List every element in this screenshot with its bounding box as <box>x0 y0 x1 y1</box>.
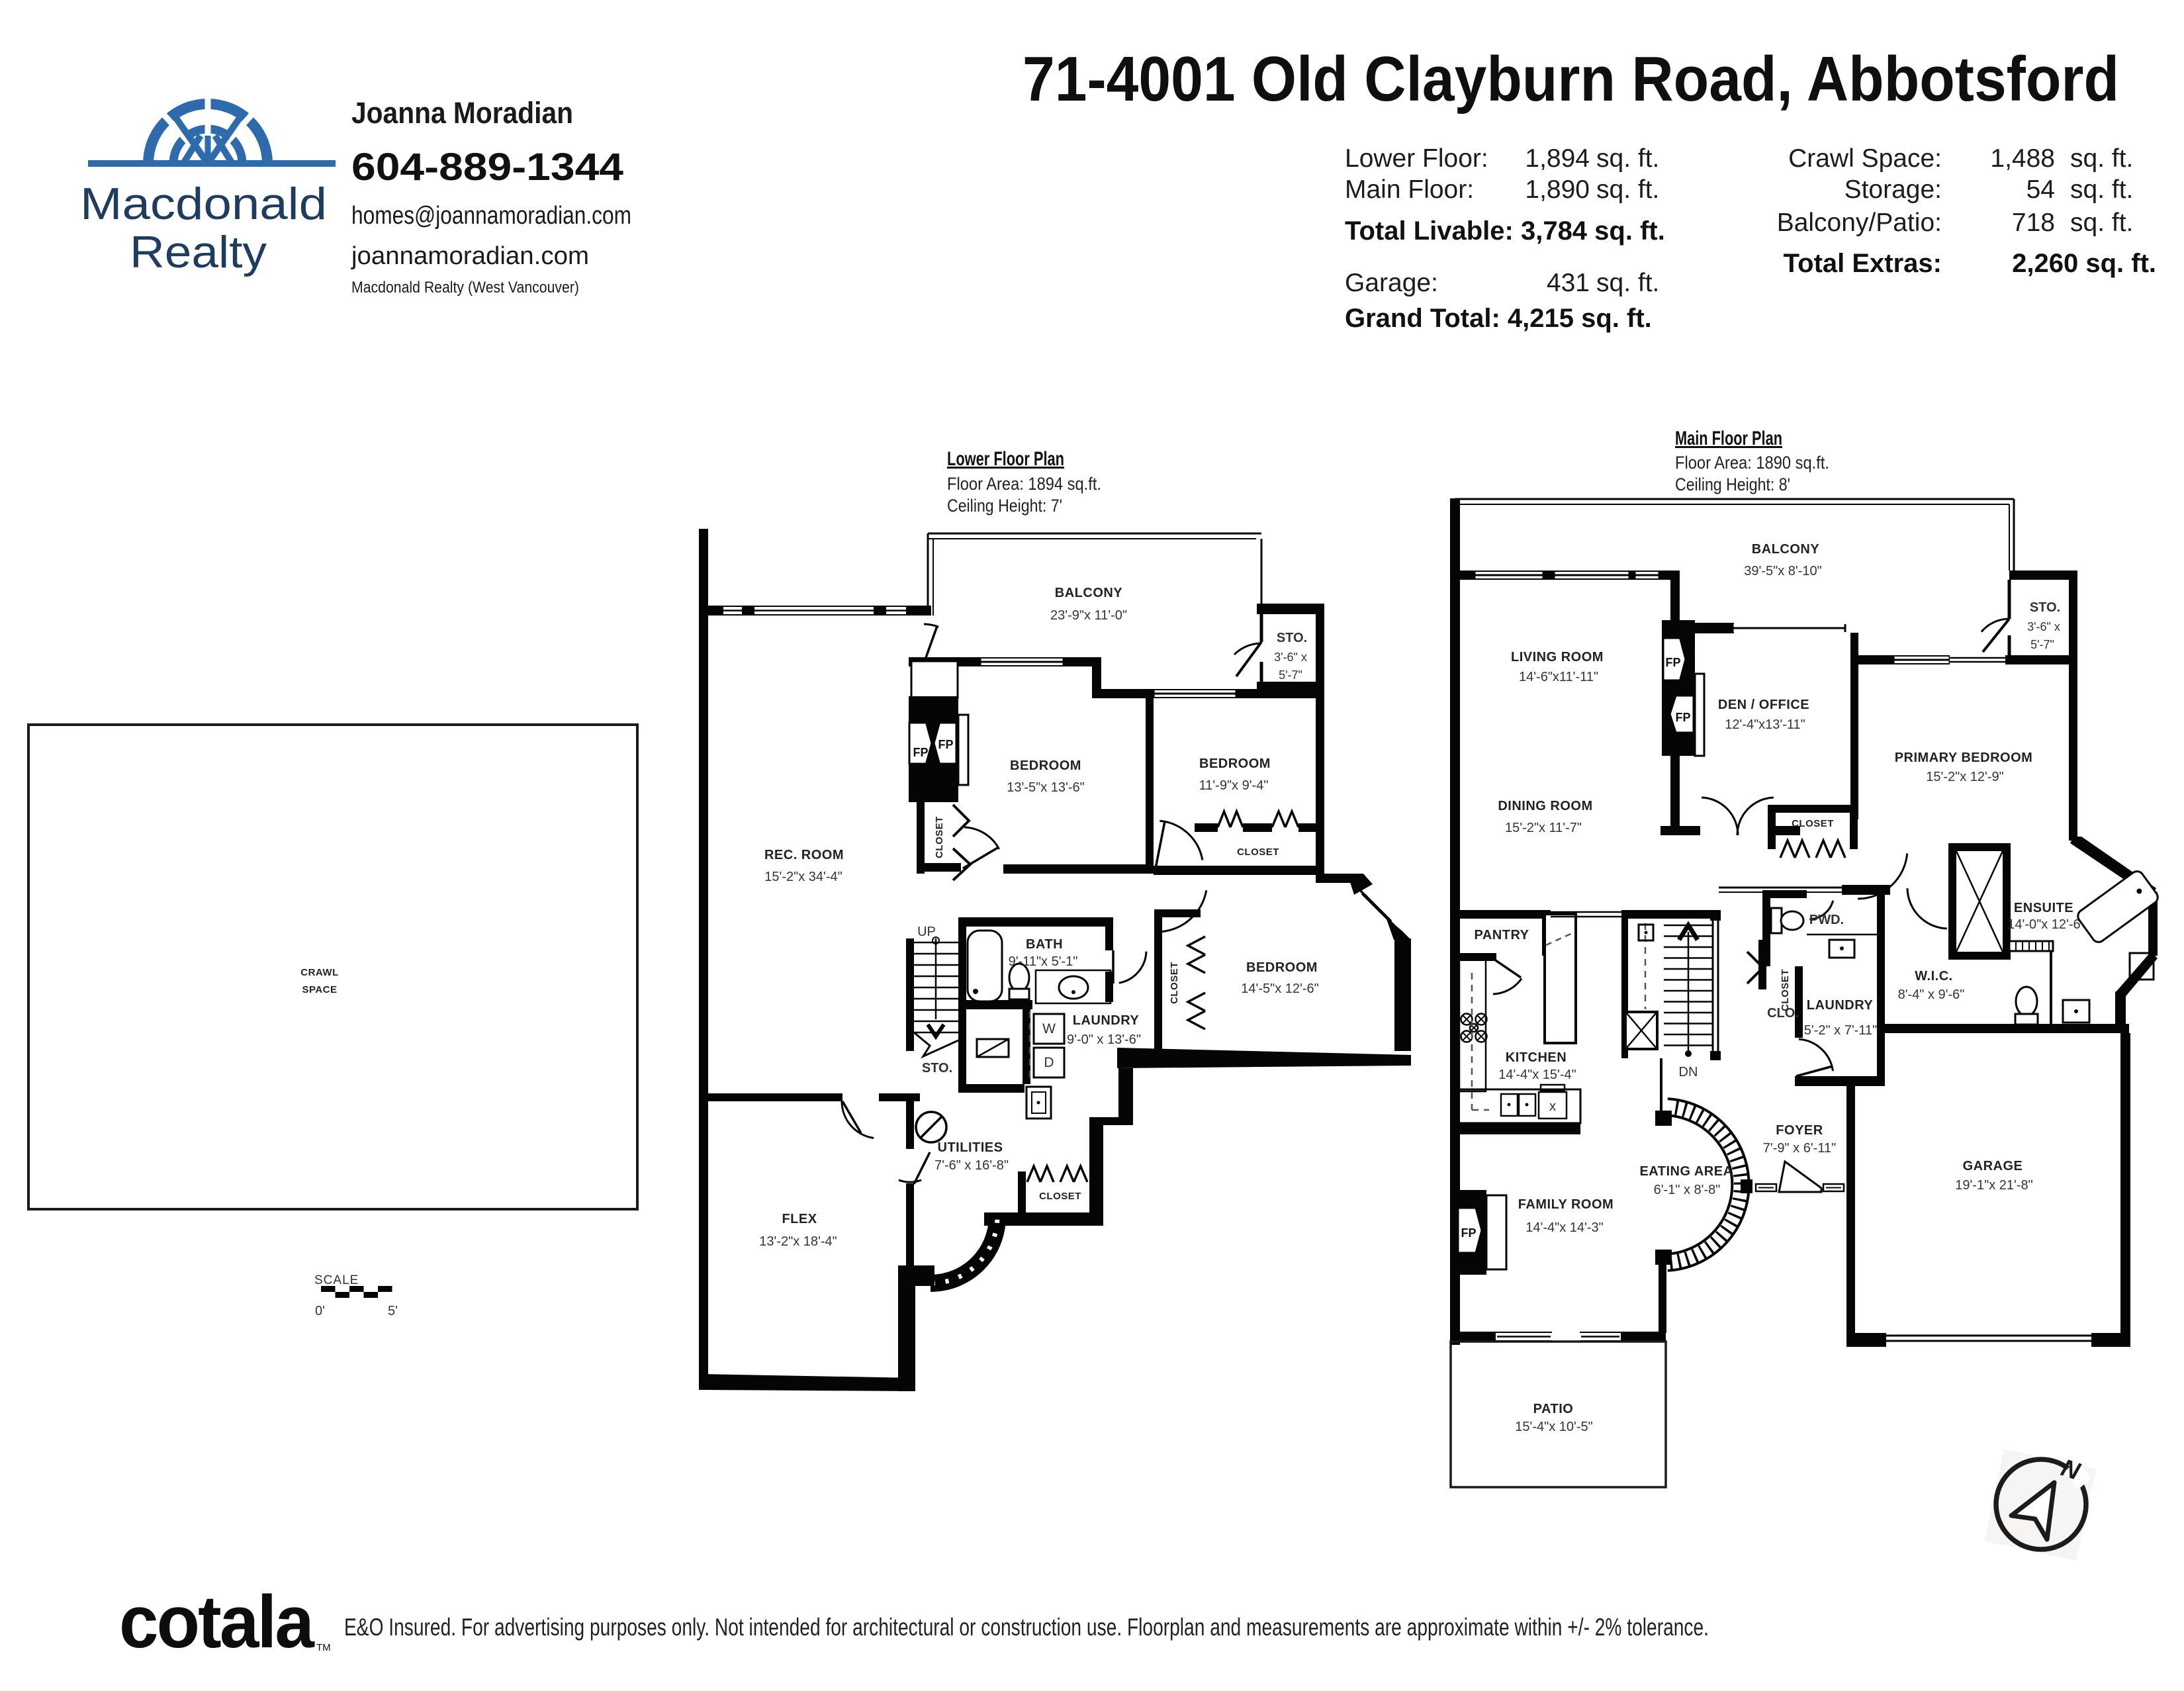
svg-text:14'-4"x 15'-4": 14'-4"x 15'-4" <box>1498 1068 1576 1082</box>
svg-text:CLOSET: CLOSET <box>1792 818 1834 829</box>
svg-text:FP: FP <box>938 738 953 751</box>
svg-text:23'-9"x 11'-0": 23'-9"x 11'-0" <box>1050 608 1127 623</box>
svg-text:sq. ft.: sq. ft. <box>2070 144 2133 173</box>
svg-text:13'-5"x 13'-6": 13'-5"x 13'-6" <box>1007 780 1084 795</box>
svg-text:1,890: 1,890 <box>1525 175 1590 204</box>
svg-text:BEDROOM: BEDROOM <box>1199 756 1271 771</box>
svg-text:15'-2"x 34'-4": 15'-2"x 34'-4" <box>764 870 842 884</box>
svg-text:DEN / OFFICE: DEN / OFFICE <box>1718 698 1809 712</box>
svg-text:W.I.C.: W.I.C. <box>1915 969 1952 983</box>
svg-text:CLOSET: CLOSET <box>1169 962 1180 1004</box>
svg-text:604-889-1344: 604-889-1344 <box>351 146 623 189</box>
svg-text:TM: TM <box>316 1642 331 1653</box>
svg-text:14'-4"x 14'-3": 14'-4"x 14'-3" <box>1525 1220 1603 1235</box>
svg-text:FP: FP <box>1461 1226 1476 1240</box>
svg-text:FP: FP <box>1665 656 1680 669</box>
svg-text:E&O Insured. For advertising p: E&O Insured. For advertising purposes on… <box>344 1614 1709 1641</box>
svg-text:homes@joannamoradian.com: homes@joannamoradian.com <box>351 202 631 230</box>
svg-text:LAUNDRY: LAUNDRY <box>1807 998 1874 1013</box>
svg-text:CLO.: CLO. <box>1767 1006 1799 1021</box>
svg-text:Lower Floor Plan: Lower Floor Plan <box>947 448 1064 470</box>
svg-text:5'-7": 5'-7" <box>2030 638 2054 651</box>
svg-text:Macdonald Realty (West Vancouv: Macdonald Realty (West Vancouver) <box>351 279 579 297</box>
svg-text:Storage:: Storage: <box>1844 175 1942 204</box>
svg-text:PANTRY: PANTRY <box>1475 928 1529 942</box>
svg-text:6'-1" x 8'-8": 6'-1" x 8'-8" <box>1654 1183 1721 1197</box>
svg-text:KITCHEN: KITCHEN <box>1506 1050 1567 1065</box>
svg-text:15'-2"x 12'-9": 15'-2"x 12'-9" <box>1926 770 2003 784</box>
svg-text:5': 5' <box>388 1304 398 1318</box>
svg-text:x: x <box>1549 1099 1556 1114</box>
svg-text:LAUNDRY: LAUNDRY <box>1073 1013 1140 1028</box>
svg-text:Joanna Moradian: Joanna Moradian <box>351 96 573 130</box>
svg-text:REC. ROOM: REC. ROOM <box>764 848 844 862</box>
svg-text:3'-6" x: 3'-6" x <box>2027 620 2060 633</box>
svg-text:PATIO: PATIO <box>1533 1402 1574 1416</box>
svg-text:7'-6" x 16'-8": 7'-6" x 16'-8" <box>934 1158 1009 1173</box>
svg-text:Main Floor Plan: Main Floor Plan <box>1675 428 1782 449</box>
svg-text:PRIMARY BEDROOM: PRIMARY BEDROOM <box>1895 751 2033 765</box>
svg-text:GARAGE: GARAGE <box>1963 1159 2023 1173</box>
svg-text:Balcony/Patio:: Balcony/Patio: <box>1777 208 1942 237</box>
svg-text:71-4001 Old Clayburn Road, Abb: 71-4001 Old Clayburn Road, Abbotsford <box>1023 44 2119 114</box>
svg-text:0': 0' <box>315 1304 325 1318</box>
svg-text:Total Extras:: Total Extras: <box>1784 249 1942 278</box>
svg-text:SCALE: SCALE <box>314 1273 359 1287</box>
svg-text:Macdonald: Macdonald <box>80 179 327 229</box>
svg-text:FP: FP <box>913 746 928 759</box>
svg-text:FOYER: FOYER <box>1776 1123 1823 1138</box>
svg-text:BALCONY: BALCONY <box>1752 542 1820 557</box>
svg-text:sq. ft.: sq. ft. <box>1596 175 1659 204</box>
svg-text:9'-11"x 5'-1": 9'-11"x 5'-1" <box>1009 954 1078 969</box>
svg-text:CLOSET: CLOSET <box>934 816 945 858</box>
svg-text:39'-5"x 8'-10": 39'-5"x 8'-10" <box>1744 564 1821 578</box>
svg-text:sq. ft.: sq. ft. <box>1596 269 1659 297</box>
svg-text:1,894: 1,894 <box>1525 144 1590 173</box>
svg-text:STO.: STO. <box>2030 600 2060 615</box>
svg-text:Floor Area: 1894 sq.ft.: Floor Area: 1894 sq.ft. <box>947 474 1101 494</box>
svg-text:5'-7": 5'-7" <box>1279 668 1302 682</box>
svg-text:FLEX: FLEX <box>782 1212 817 1226</box>
svg-text:STO.: STO. <box>922 1061 952 1075</box>
svg-text:sq. ft.: sq. ft. <box>2070 208 2133 237</box>
svg-text:431: 431 <box>1547 269 1590 297</box>
svg-text:2,260 sq. ft.: 2,260 sq. ft. <box>2012 249 2156 278</box>
svg-text:DINING ROOM: DINING ROOM <box>1498 799 1592 813</box>
svg-text:EATING AREA: EATING AREA <box>1639 1164 1733 1179</box>
svg-text:D: D <box>1044 1055 1054 1070</box>
svg-text:DN: DN <box>1679 1065 1698 1079</box>
svg-text:ENSUITE: ENSUITE <box>2014 901 2073 915</box>
svg-text:54: 54 <box>2026 175 2055 204</box>
svg-text:BEDROOM: BEDROOM <box>1010 758 1081 773</box>
svg-text:718: 718 <box>2012 208 2055 237</box>
svg-text:FP: FP <box>1675 711 1690 724</box>
svg-text:14'-6"x11'-11": 14'-6"x11'-11" <box>1519 670 1598 684</box>
svg-text:Ceiling Height: 7': Ceiling Height: 7' <box>947 496 1062 516</box>
svg-text:19'-1"x 21'-8": 19'-1"x 21'-8" <box>1955 1178 2032 1193</box>
svg-text:STO.: STO. <box>1277 631 1307 645</box>
svg-text:14'-5"x 12'-6": 14'-5"x 12'-6" <box>1241 982 1318 996</box>
svg-text:Garage:: Garage: <box>1345 269 1438 297</box>
svg-text:Grand Total: 4,215 sq. ft.: Grand Total: 4,215 sq. ft. <box>1345 304 1652 333</box>
svg-text:14'-0"x 12'-6": 14'-0"x 12'-6" <box>2007 917 2085 932</box>
svg-text:Lower Floor:: Lower Floor: <box>1345 144 1488 173</box>
svg-text:12'-4"x13'-11": 12'-4"x13'-11" <box>1725 717 1805 732</box>
svg-text:CRAWL: CRAWL <box>300 967 339 978</box>
svg-text:Crawl Space:: Crawl Space: <box>1788 144 1942 173</box>
svg-text:11'-9"x 9'-4": 11'-9"x 9'-4" <box>1199 778 1269 793</box>
svg-text:7'-9" x 6'-11": 7'-9" x 6'-11" <box>1763 1141 1836 1156</box>
svg-text:CLOSET: CLOSET <box>1237 846 1279 858</box>
svg-text:BALCONY: BALCONY <box>1055 586 1123 600</box>
svg-text:PWD.: PWD. <box>1809 913 1844 927</box>
svg-text:Main Floor:: Main Floor: <box>1345 175 1474 204</box>
svg-text:BEDROOM: BEDROOM <box>1246 960 1318 975</box>
svg-text:3'-6" x: 3'-6" x <box>1274 651 1307 664</box>
svg-text:1,488: 1,488 <box>1990 144 2055 173</box>
svg-text:Realty: Realty <box>130 227 267 277</box>
svg-text:9'-0" x 13'-6": 9'-0" x 13'-6" <box>1067 1032 1141 1047</box>
svg-text:5'-2" x 7'-11": 5'-2" x 7'-11" <box>1804 1023 1877 1038</box>
svg-text:sq. ft.: sq. ft. <box>1596 144 1659 173</box>
svg-text:CLOSET: CLOSET <box>1780 969 1791 1011</box>
svg-text:15'-4"x 10'-5": 15'-4"x 10'-5" <box>1515 1420 1592 1434</box>
svg-text:Ceiling Height: 8': Ceiling Height: 8' <box>1675 475 1790 494</box>
svg-text:8'-4" x 9'-6": 8'-4" x 9'-6" <box>1898 987 1965 1002</box>
svg-text:W: W <box>1042 1021 1056 1036</box>
svg-text:15'-2"x 11'-7": 15'-2"x 11'-7" <box>1505 821 1582 835</box>
svg-text:LIVING ROOM: LIVING ROOM <box>1511 650 1604 664</box>
svg-text:UTILITIES: UTILITIES <box>938 1140 1003 1155</box>
svg-text:Floor Area: 1890 sq.ft.: Floor Area: 1890 sq.ft. <box>1675 453 1829 473</box>
svg-text:joannamoradian.com: joannamoradian.com <box>351 242 589 270</box>
svg-text:FAMILY ROOM: FAMILY ROOM <box>1518 1197 1614 1212</box>
svg-text:SPACE: SPACE <box>302 984 337 995</box>
svg-text:CLOSET: CLOSET <box>1039 1191 1081 1202</box>
svg-text:Total Livable: 3,784 sq. ft.: Total Livable: 3,784 sq. ft. <box>1345 216 1665 246</box>
svg-text:BATH: BATH <box>1026 937 1063 952</box>
svg-text:sq. ft.: sq. ft. <box>2070 175 2133 204</box>
svg-text:13'-2"x 18'-4": 13'-2"x 18'-4" <box>759 1234 837 1249</box>
svg-text:UP: UP <box>917 925 936 939</box>
svg-text:cotala: cotala <box>119 1580 315 1663</box>
